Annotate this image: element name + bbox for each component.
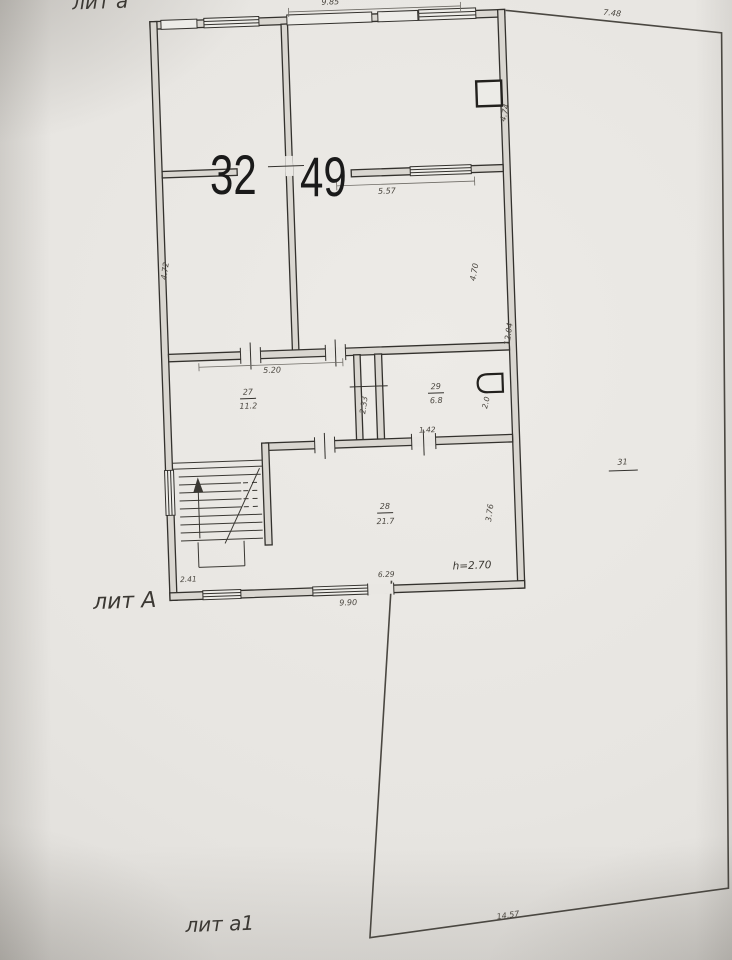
- dim-room29-side: 2.0: [480, 396, 492, 410]
- lit-a-top-label: лит а: [71, 0, 129, 15]
- dim-room49-height: 4.70: [468, 263, 480, 282]
- svg-text:29: 29: [431, 382, 441, 391]
- door-opening: [314, 433, 335, 460]
- svg-text:28: 28: [380, 502, 390, 511]
- sink-icon: [477, 374, 503, 393]
- duct-icon: [476, 81, 502, 107]
- dim-room32-height: 4.72: [159, 262, 170, 281]
- dim-boundary-top: 7.48: [603, 8, 622, 19]
- plot-boundary-line: [338, 3, 732, 938]
- windows: [149, 8, 496, 601]
- window: [203, 589, 241, 599]
- dim-room49-width: 5.57: [378, 186, 397, 196]
- dim-room28-side: 3.76: [484, 503, 495, 522]
- stairwell-right-wall: [262, 443, 273, 545]
- door-opening: [268, 155, 305, 176]
- svg-text:21.7: 21.7: [376, 517, 395, 527]
- window: [161, 19, 197, 29]
- staircase: [172, 460, 266, 568]
- window: [419, 8, 476, 20]
- room-28-label: 28 21.7: [376, 502, 396, 527]
- dim-door-width: 1.42: [419, 425, 436, 435]
- dimension-lines: [187, 0, 638, 485]
- plot-number: 31: [617, 457, 627, 466]
- partition-32-49: [281, 24, 299, 352]
- svg-text:6.8: 6.8: [430, 396, 443, 405]
- dim-bottom-width: 9.90: [339, 598, 357, 608]
- room-27-label: 27 11.2: [239, 387, 258, 411]
- overlay-number-32: 32: [210, 147, 257, 203]
- room-29-label: 29 6.8: [428, 382, 445, 406]
- plan-svg: 9.85 7.48 4.74 5.57 4.72 4.70 12.04 5.20…: [0, 0, 732, 960]
- building-walls: [150, 9, 525, 600]
- plan-drawing: 9.85 7.48 4.74 5.57 4.72 4.70 12.04 5.20…: [0, 0, 732, 960]
- ceiling-height-note: h=2.70: [452, 559, 492, 572]
- door-opening: [368, 583, 394, 596]
- window: [410, 165, 471, 176]
- svg-text:11.2: 11.2: [239, 401, 257, 411]
- dim-plot-bottom: 14.57: [496, 909, 521, 921]
- dim-room27-width: 5.20: [263, 365, 281, 375]
- window: [165, 470, 176, 515]
- room29-left-wall: [375, 354, 385, 441]
- dim-stair-width: 2.41: [180, 574, 197, 584]
- dim-shaft: 2.33: [358, 396, 369, 415]
- dim-room28-width: 6.29: [378, 570, 395, 580]
- svg-text:27: 27: [243, 387, 254, 396]
- window: [204, 16, 259, 27]
- stair-break-line: [223, 468, 263, 543]
- plot-number-underline: [609, 470, 638, 471]
- window: [313, 585, 369, 596]
- window: [378, 10, 418, 21]
- lower-mid-wall: [266, 434, 513, 450]
- dim-top-width: 9.85: [321, 0, 339, 7]
- window: [287, 12, 372, 25]
- overlay-number-49: 49: [300, 149, 347, 205]
- lit-A-label: лит А: [92, 588, 157, 615]
- floor-plan-scan: 9.85 7.48 4.74 5.57 4.72 4.70 12.04 5.20…: [0, 0, 732, 960]
- lit-a1-label: лит а1: [184, 911, 255, 937]
